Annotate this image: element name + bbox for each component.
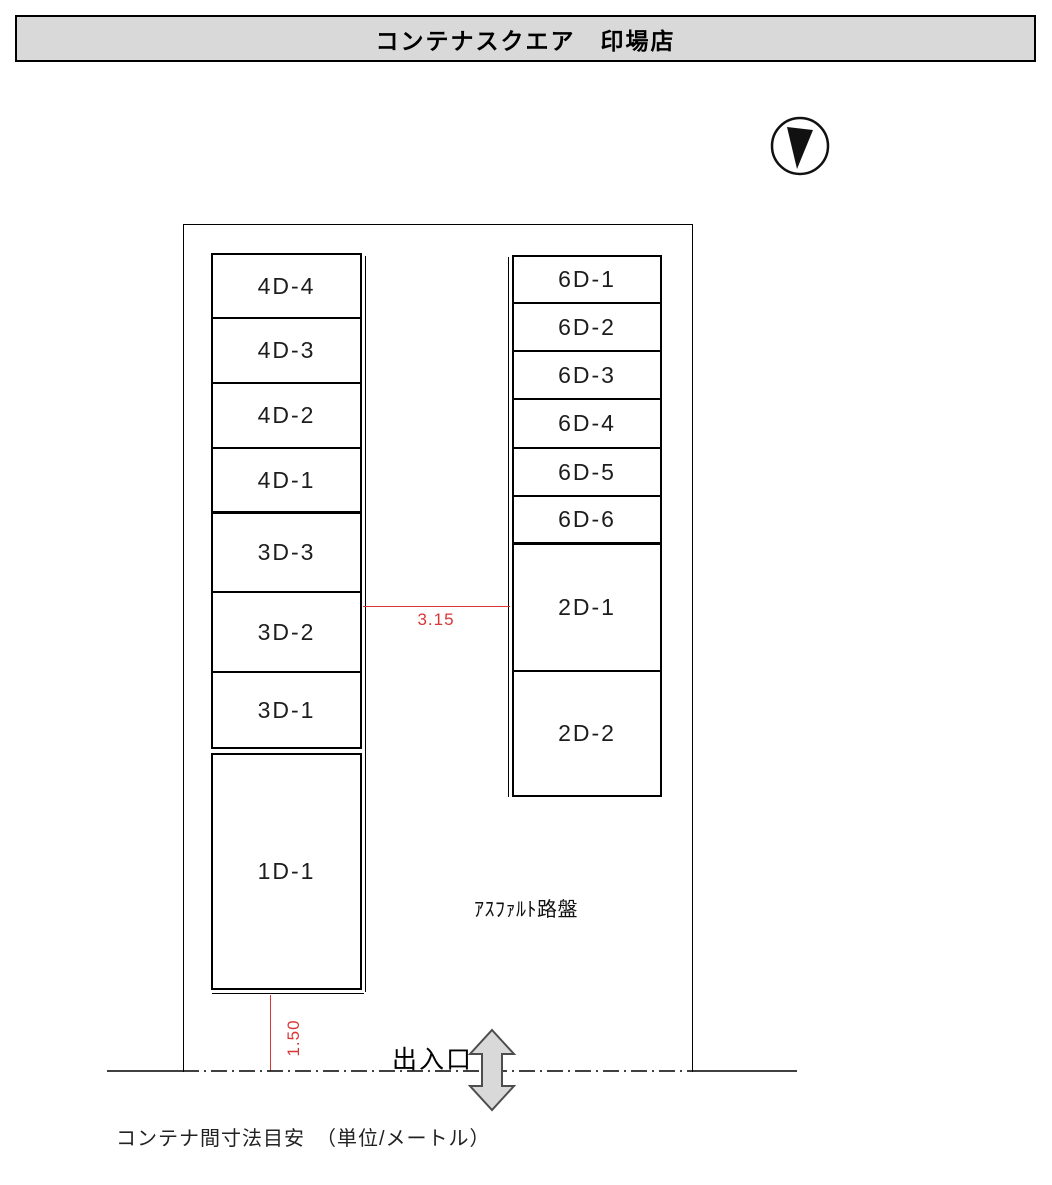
unit-cell-3D-1: 3D-1 xyxy=(213,673,360,747)
surface-label: ｱｽﾌｧﾙﾄ路盤 xyxy=(474,893,578,922)
left-stack-shadow-line xyxy=(365,256,366,992)
lower-stack-shadow-line xyxy=(212,993,364,994)
unit-cell-3D-2: 3D-2 xyxy=(213,593,360,673)
page-title-text: コンテナスクエア 印場店 xyxy=(376,22,676,56)
unit-cell-6D-5: 6D-5 xyxy=(514,449,660,497)
right-stack-shadow-line xyxy=(508,257,509,797)
unit-cell-1D-1: 1D-1 xyxy=(213,755,360,988)
unit-cell-2D-1: 2D-1 xyxy=(514,545,660,672)
unit-cell-6D-4: 6D-4 xyxy=(514,400,660,449)
unit-cell-6D-1: 6D-1 xyxy=(514,257,660,304)
page-title: コンテナスクエア 印場店 xyxy=(15,15,1036,62)
north-arrow-icon xyxy=(769,115,831,177)
unit-cell-3D-3: 3D-3 xyxy=(213,514,360,593)
unit-cell-6D-2: 6D-2 xyxy=(514,304,660,352)
front-clearance-dimension-line xyxy=(270,995,271,1071)
front-clearance-dimension-label: 1.50 xyxy=(284,1007,304,1069)
unit-cell-4D-1: 4D-1 xyxy=(213,449,360,514)
unit-cell-4D-2: 4D-2 xyxy=(213,384,360,449)
container-stack-6D-2D: 6D-16D-26D-36D-46D-56D-62D-12D-2 xyxy=(512,255,662,797)
container-stack-1D: 1D-1 xyxy=(211,753,362,990)
entrance-arrow-icon xyxy=(464,1028,520,1112)
footer-note: コンテナ間寸法目安 （単位/メートル） xyxy=(116,1122,491,1151)
container-stack-4D-3D: 4D-44D-34D-24D-13D-33D-23D-1 xyxy=(211,253,362,749)
aisle-dimension-label: 3.15 xyxy=(396,610,476,630)
unit-cell-6D-6: 6D-6 xyxy=(514,497,660,545)
unit-cell-4D-3: 4D-3 xyxy=(213,319,360,384)
unit-cell-2D-2: 2D-2 xyxy=(514,672,660,795)
entrance-label: 出入口 xyxy=(392,1040,473,1076)
unit-cell-6D-3: 6D-3 xyxy=(514,352,660,400)
unit-cell-4D-4: 4D-4 xyxy=(213,255,360,319)
aisle-dimension-line xyxy=(363,606,510,607)
